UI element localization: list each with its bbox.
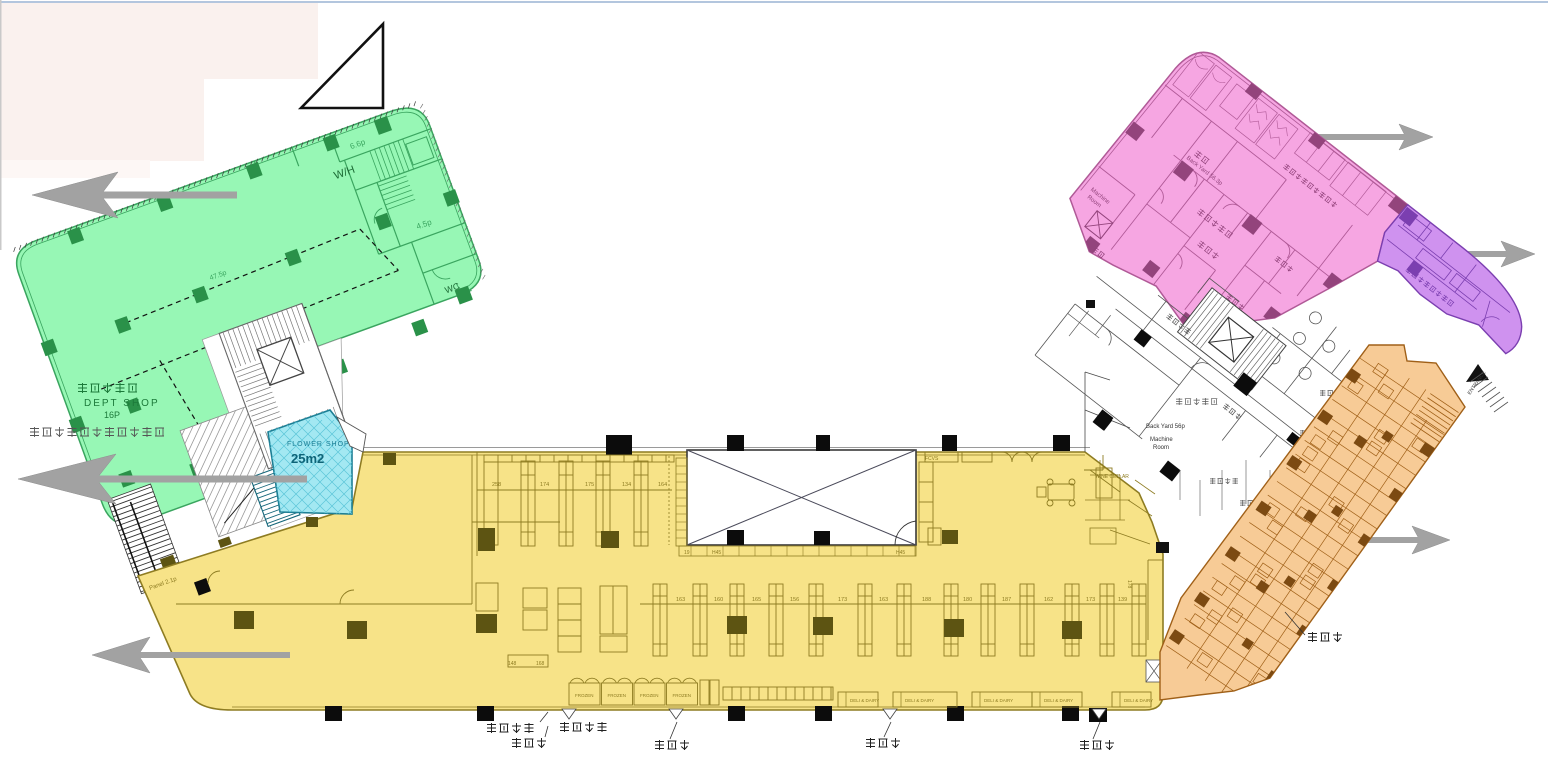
svg-text:175: 175: [585, 482, 594, 488]
svg-text:173: 173: [838, 597, 847, 603]
svg-text:DELI & DAIRY: DELI & DAIRY: [984, 698, 1013, 703]
svg-text:139: 139: [1118, 597, 1127, 603]
svg-text:FROZEN: FROZEN: [673, 693, 692, 698]
svg-text:168: 168: [536, 661, 545, 667]
svg-text:DELI & DAIRY: DELI & DAIRY: [905, 698, 934, 703]
svg-text:DELI & DAIRY: DELI & DAIRY: [850, 698, 879, 703]
svg-text:Back Yard 56p: Back Yard 56p: [1146, 424, 1185, 430]
svg-text:162: 162: [1044, 597, 1053, 603]
svg-text:H45: H45: [712, 550, 721, 556]
svg-text:134: 134: [622, 482, 631, 488]
svg-text:H45: H45: [896, 550, 905, 556]
svg-text:165: 165: [752, 597, 761, 603]
svg-text:174: 174: [540, 482, 549, 488]
svg-text:FROZEN: FROZEN: [608, 693, 627, 698]
svg-text:163: 163: [676, 597, 685, 603]
svg-text:187: 187: [1002, 597, 1011, 603]
svg-text:Machine: Machine: [1150, 437, 1173, 443]
svg-text:FLOWER SHOP: FLOWER SHOP: [287, 441, 350, 448]
svg-text:FCVS: FCVS: [925, 456, 939, 462]
svg-text:188: 188: [922, 597, 931, 603]
svg-text:Room: Room: [1153, 445, 1169, 451]
svg-text:16P: 16P: [104, 410, 120, 420]
svg-text:25m2: 25m2: [291, 451, 324, 466]
svg-text:173: 173: [1086, 597, 1095, 603]
svg-text:DEPT SHOP: DEPT SHOP: [84, 398, 160, 409]
svg-text:FROZEN: FROZEN: [575, 693, 594, 698]
svg-text:148: 148: [508, 661, 517, 667]
svg-text:178: 178: [1126, 580, 1132, 589]
svg-text:164: 164: [658, 482, 667, 488]
svg-text:FROZEN: FROZEN: [640, 693, 659, 698]
svg-text:258: 258: [492, 482, 501, 488]
svg-text:160: 160: [714, 597, 723, 603]
svg-text:163: 163: [879, 597, 888, 603]
svg-text:156: 156: [790, 597, 799, 603]
svg-text:DELI & DAIRY: DELI & DAIRY: [1044, 698, 1073, 703]
svg-text:180: 180: [963, 597, 972, 603]
svg-text:DELI & DAIRY: DELI & DAIRY: [1124, 698, 1153, 703]
svg-text:19: 19: [684, 550, 690, 556]
